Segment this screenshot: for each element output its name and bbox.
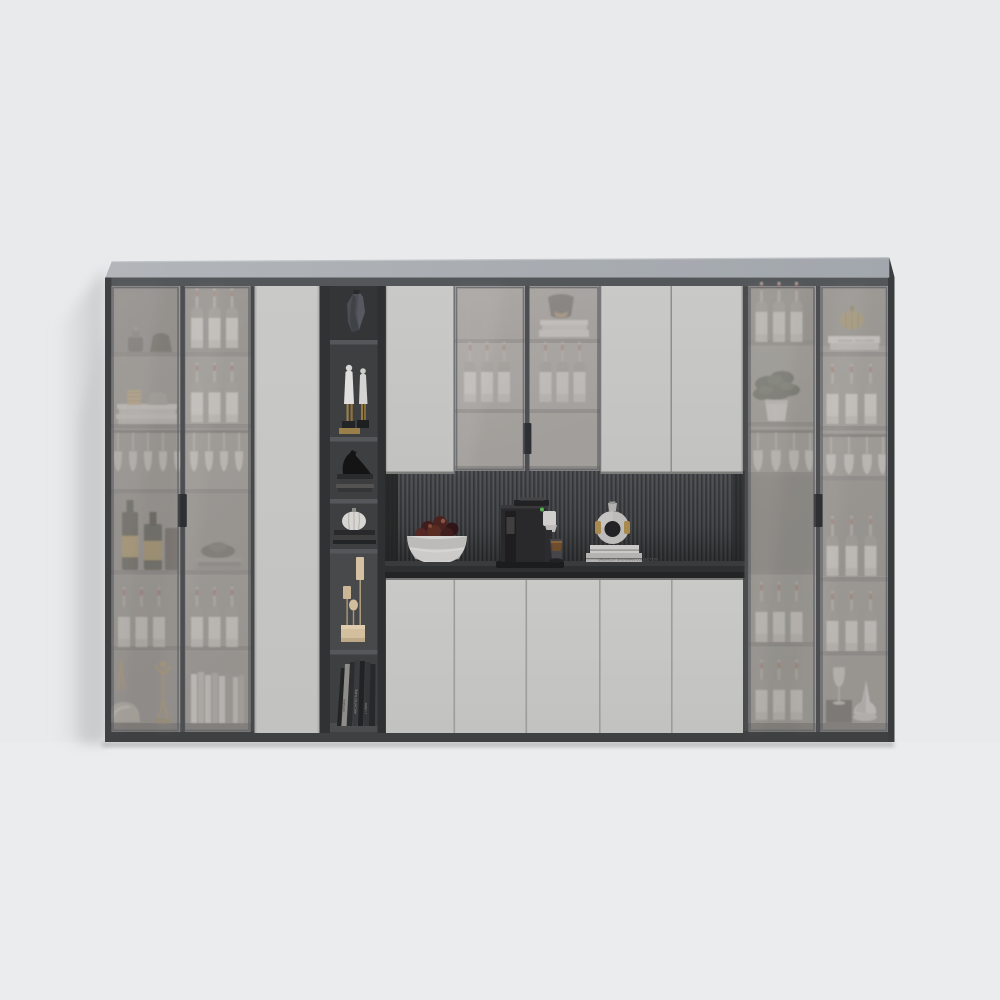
svg-text:schnabel: schnabel [342,699,347,712]
svg-text:GREATEST SHOWMAN COLLECTION: GREATEST SHOWMAN COLLECTION [598,558,658,562]
svg-text:I / AWW: I / AWW [364,703,368,714]
